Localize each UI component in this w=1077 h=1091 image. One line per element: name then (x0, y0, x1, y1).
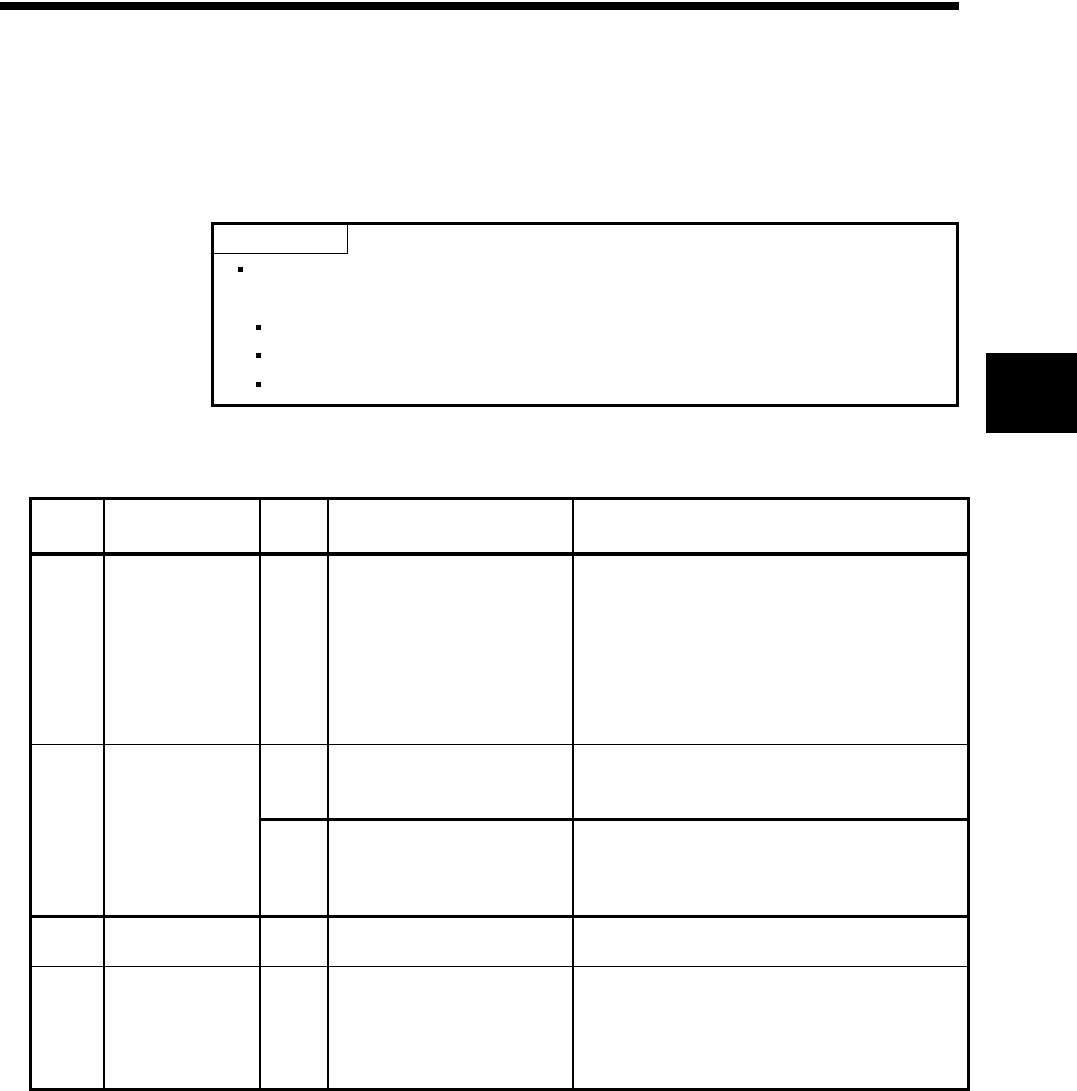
note-label-box (211, 222, 348, 254)
table-cell (104, 554, 260, 745)
table-cell (260, 917, 328, 967)
bullet-square-icon (256, 382, 261, 387)
table-header-cell (31, 499, 104, 554)
note-item (256, 378, 269, 387)
table-row (31, 917, 969, 967)
table-cell (573, 745, 969, 820)
chapter-tab-marker (986, 353, 1077, 433)
table-cell (328, 820, 573, 917)
table-cell (328, 967, 573, 1090)
table-cell (573, 820, 969, 917)
table-header-cell (328, 499, 573, 554)
table-cell (573, 554, 969, 745)
table-cell (260, 820, 328, 917)
table-header-cell (104, 499, 260, 554)
table-header-cell (260, 499, 328, 554)
note-item (238, 263, 251, 272)
table-row (31, 745, 969, 820)
table-cell (31, 554, 104, 745)
table-cell (328, 917, 573, 967)
table-cell (260, 554, 328, 745)
table-cell (573, 967, 969, 1090)
table-row (31, 554, 969, 745)
table-cell (104, 967, 260, 1090)
table-row (31, 967, 969, 1090)
table-cell (260, 745, 328, 820)
note-box (211, 222, 959, 407)
table-cell (260, 967, 328, 1090)
table-cell (328, 745, 573, 820)
note-item (256, 321, 269, 330)
bullet-square-icon (256, 325, 261, 330)
spec-table (29, 497, 970, 1091)
table-cell (104, 917, 260, 967)
table-header-row (31, 499, 969, 554)
note-item (256, 349, 269, 358)
top-rule (0, 2, 959, 10)
table-cell-merged (104, 745, 260, 917)
bullet-square-icon (238, 267, 243, 272)
table-cell-merged (31, 745, 104, 917)
table-cell (328, 554, 573, 745)
table-cell (31, 917, 104, 967)
table-cell (573, 917, 969, 967)
table-header-cell (573, 499, 969, 554)
bullet-square-icon (256, 353, 261, 358)
table-cell (31, 967, 104, 1090)
